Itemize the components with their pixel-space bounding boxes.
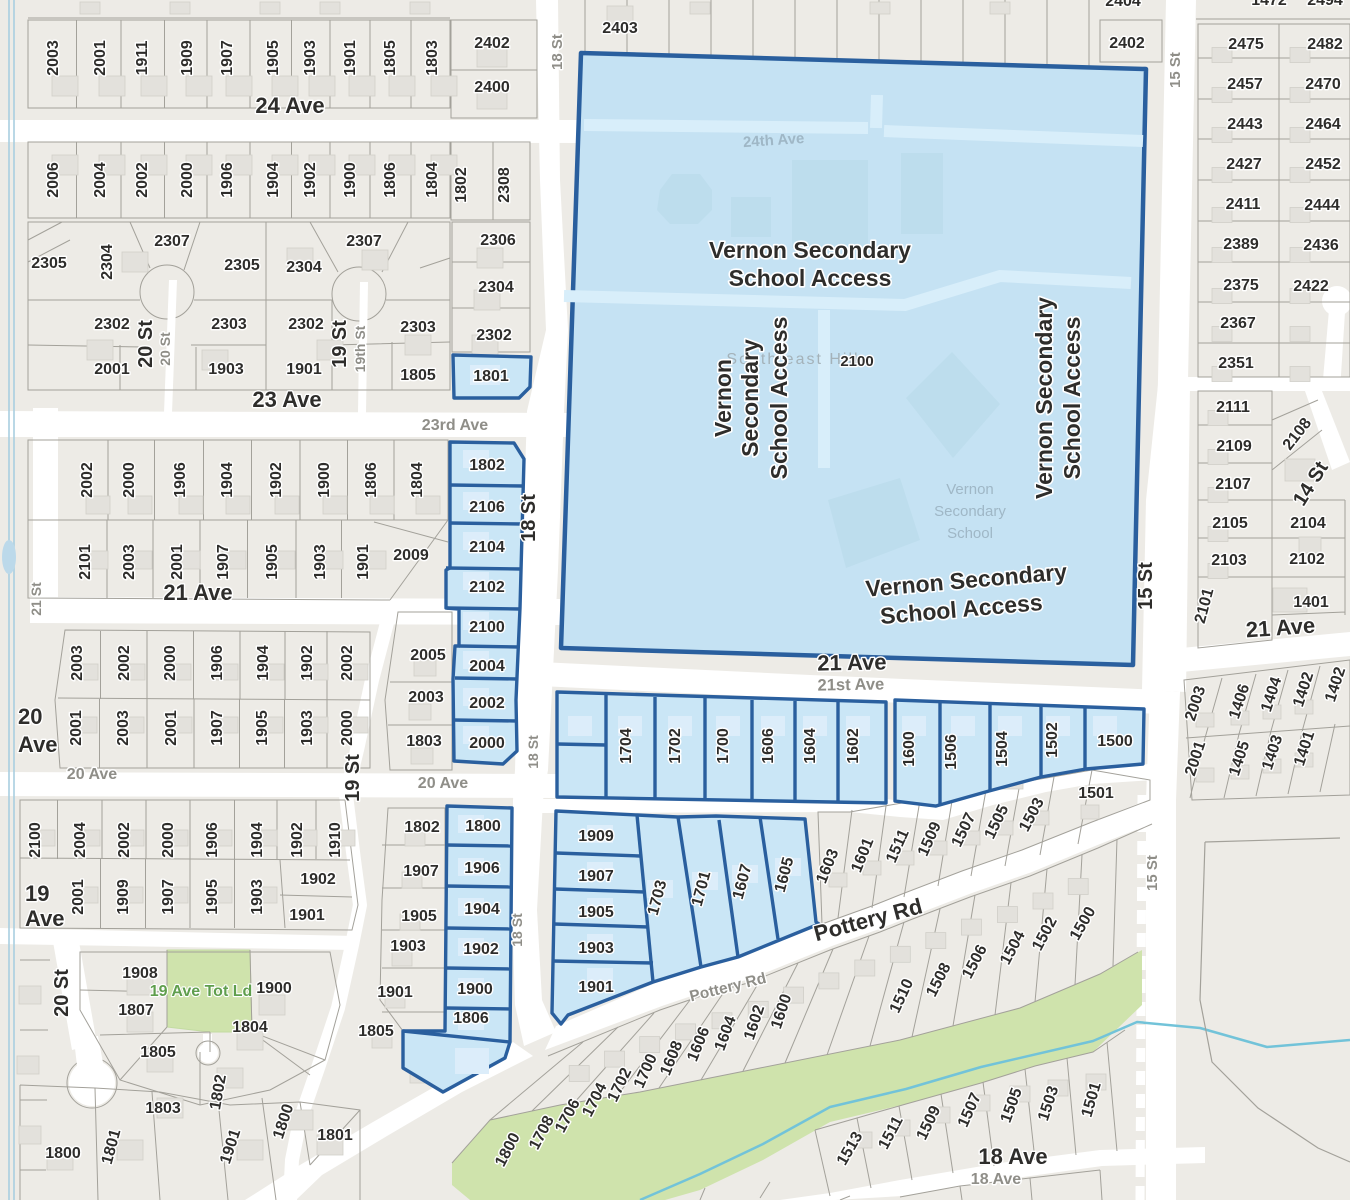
svg-text:2003: 2003: [69, 645, 86, 681]
svg-text:2306: 2306: [480, 232, 516, 249]
svg-text:19th St: 19th St: [352, 325, 368, 372]
svg-text:2004: 2004: [469, 658, 505, 675]
svg-text:1906: 1906: [204, 822, 221, 858]
svg-text:2302: 2302: [288, 316, 324, 333]
svg-text:2002: 2002: [116, 645, 133, 681]
svg-text:1900: 1900: [256, 980, 292, 997]
svg-text:2000: 2000: [162, 645, 179, 681]
svg-text:2006: 2006: [45, 162, 62, 198]
svg-text:1504: 1504: [994, 731, 1011, 767]
svg-text:1904: 1904: [249, 822, 266, 858]
svg-text:1805: 1805: [400, 367, 436, 384]
svg-text:1903: 1903: [299, 710, 316, 746]
svg-text:2002: 2002: [339, 645, 356, 681]
svg-text:1804: 1804: [424, 162, 441, 198]
svg-text:2103: 2103: [1211, 552, 1247, 569]
svg-text:1907: 1907: [160, 879, 177, 915]
svg-text:2000: 2000: [179, 162, 196, 198]
svg-text:20 Ave: 20 Ave: [67, 766, 118, 783]
svg-text:1904: 1904: [464, 901, 500, 918]
svg-text:1800: 1800: [465, 818, 501, 835]
svg-text:1909: 1909: [578, 828, 614, 845]
svg-text:2402: 2402: [474, 35, 510, 52]
svg-text:1902: 1902: [268, 462, 285, 498]
svg-text:2464: 2464: [1305, 116, 1341, 133]
svg-text:2005: 2005: [410, 647, 446, 664]
svg-text:2403: 2403: [602, 20, 638, 37]
svg-text:2004: 2004: [72, 822, 89, 858]
svg-text:2422: 2422: [1293, 278, 1329, 295]
svg-text:1801: 1801: [317, 1127, 353, 1144]
svg-text:2106: 2106: [469, 499, 505, 516]
svg-text:1501: 1501: [1078, 785, 1114, 802]
svg-text:1902: 1902: [300, 871, 336, 888]
svg-text:2302: 2302: [94, 316, 130, 333]
svg-text:1800: 1800: [45, 1145, 81, 1162]
svg-text:1806: 1806: [363, 462, 380, 498]
svg-text:1902: 1902: [289, 822, 306, 858]
svg-text:2003: 2003: [45, 40, 62, 76]
svg-text:20: 20: [18, 704, 42, 729]
svg-text:19 Ave Tot Ld: 19 Ave Tot Ld: [150, 983, 253, 1000]
svg-text:1901: 1901: [578, 979, 614, 996]
svg-text:2109: 2109: [1216, 438, 1252, 455]
svg-text:2111: 2111: [1216, 399, 1250, 416]
svg-text:19 St: 19 St: [329, 320, 351, 368]
svg-text:Ave: Ave: [25, 906, 65, 931]
svg-text:2494: 2494: [1307, 0, 1343, 9]
svg-text:2404: 2404: [1105, 0, 1141, 10]
svg-text:2482: 2482: [1307, 36, 1343, 53]
svg-text:2000: 2000: [469, 735, 505, 752]
svg-text:1904: 1904: [219, 462, 236, 498]
svg-text:1804: 1804: [232, 1019, 268, 1036]
svg-text:Ave: Ave: [18, 732, 58, 757]
svg-text:1472: 1472: [1251, 0, 1287, 9]
svg-text:2436: 2436: [1303, 237, 1339, 254]
svg-text:2100: 2100: [469, 619, 505, 636]
svg-text:1702: 1702: [667, 728, 684, 764]
svg-text:1802: 1802: [404, 819, 440, 836]
svg-text:1906: 1906: [172, 462, 189, 498]
svg-text:1700: 1700: [715, 728, 732, 764]
svg-text:1903: 1903: [302, 40, 319, 76]
svg-text:School Access: School Access: [766, 317, 792, 480]
svg-text:1907: 1907: [219, 40, 236, 76]
svg-text:1806: 1806: [382, 162, 399, 198]
svg-text:2307: 2307: [154, 233, 190, 250]
svg-text:1806: 1806: [453, 1010, 489, 1027]
svg-text:1904: 1904: [265, 162, 282, 198]
svg-text:21 Ave: 21 Ave: [163, 580, 232, 605]
svg-text:2001: 2001: [94, 361, 130, 378]
svg-text:1902: 1902: [463, 941, 499, 958]
svg-text:2107: 2107: [1215, 476, 1251, 493]
svg-text:2004: 2004: [92, 162, 109, 198]
svg-text:1600: 1600: [901, 731, 918, 767]
svg-text:School: School: [947, 525, 993, 542]
svg-text:2001: 2001: [169, 544, 186, 580]
svg-text:18 St: 18 St: [509, 913, 525, 947]
svg-text:Secondary: Secondary: [737, 339, 763, 457]
svg-text:1908: 1908: [122, 965, 158, 982]
svg-text:2303: 2303: [211, 316, 247, 333]
svg-text:20 Ave: 20 Ave: [418, 775, 469, 792]
svg-text:Vernon: Vernon: [710, 359, 736, 437]
svg-text:2104: 2104: [1290, 515, 1326, 532]
svg-text:1905: 1905: [254, 710, 271, 746]
svg-text:2427: 2427: [1226, 156, 1262, 173]
svg-text:1902: 1902: [302, 162, 319, 198]
svg-text:2304: 2304: [99, 244, 116, 280]
svg-text:1801: 1801: [473, 368, 509, 385]
svg-text:20 St: 20 St: [135, 320, 157, 368]
svg-text:18 Ave: 18 Ave: [978, 1144, 1047, 1169]
svg-text:1805: 1805: [140, 1044, 176, 1061]
svg-text:15 St: 15 St: [1135, 562, 1157, 610]
svg-text:1900: 1900: [316, 462, 333, 498]
svg-text:21 Ave: 21 Ave: [1245, 613, 1316, 643]
svg-text:21 St: 21 St: [28, 582, 44, 616]
svg-text:1901: 1901: [355, 544, 372, 580]
svg-text:2475: 2475: [1228, 36, 1264, 53]
svg-text:1900: 1900: [342, 162, 359, 198]
svg-text:1905: 1905: [401, 908, 437, 925]
svg-text:Secondary: Secondary: [934, 503, 1006, 520]
svg-text:2102: 2102: [469, 579, 505, 596]
svg-text:21st Ave: 21st Ave: [817, 675, 884, 694]
svg-text:2351: 2351: [1218, 355, 1254, 372]
svg-text:2411: 2411: [1226, 196, 1261, 213]
svg-text:2302: 2302: [476, 327, 512, 344]
svg-text:2444: 2444: [1304, 197, 1340, 214]
svg-text:1606: 1606: [760, 728, 777, 764]
svg-text:1802: 1802: [453, 167, 470, 203]
svg-text:19: 19: [25, 881, 49, 906]
svg-text:1907: 1907: [209, 710, 226, 746]
svg-text:2400: 2400: [474, 79, 510, 96]
svg-text:2402: 2402: [1109, 35, 1145, 52]
svg-text:2003: 2003: [121, 544, 138, 580]
svg-text:2470: 2470: [1305, 76, 1341, 93]
svg-text:2002: 2002: [79, 462, 96, 498]
svg-text:21 Ave: 21 Ave: [817, 649, 887, 675]
svg-text:2305: 2305: [31, 255, 67, 272]
svg-text:2000: 2000: [160, 822, 177, 858]
svg-text:2452: 2452: [1305, 156, 1341, 173]
svg-text:2001: 2001: [163, 710, 180, 746]
svg-text:1401: 1401: [1293, 594, 1329, 611]
svg-text:1900: 1900: [457, 981, 493, 998]
svg-text:2002: 2002: [469, 695, 505, 712]
svg-text:2100: 2100: [27, 822, 44, 858]
svg-text:18 St: 18 St: [549, 34, 566, 70]
svg-text:2000: 2000: [339, 710, 356, 746]
svg-text:1802: 1802: [469, 457, 505, 474]
svg-text:2457: 2457: [1227, 76, 1263, 93]
svg-text:1704: 1704: [618, 728, 635, 764]
svg-text:2303: 2303: [400, 319, 436, 336]
svg-text:2101: 2101: [77, 544, 94, 580]
svg-text:1903: 1903: [208, 361, 244, 378]
svg-text:2001: 2001: [68, 710, 85, 746]
svg-text:Vernon Secondary: Vernon Secondary: [709, 237, 911, 263]
svg-text:1904: 1904: [255, 645, 272, 681]
svg-text:2304: 2304: [478, 279, 514, 296]
svg-text:2009: 2009: [393, 547, 429, 564]
svg-text:1901: 1901: [377, 984, 413, 1001]
svg-text:1602: 1602: [845, 728, 862, 764]
svg-text:2375: 2375: [1223, 277, 1259, 294]
svg-text:1803: 1803: [145, 1100, 181, 1117]
svg-text:2367: 2367: [1220, 315, 1256, 332]
svg-text:15 St: 15 St: [1167, 52, 1184, 88]
svg-text:1903: 1903: [578, 940, 614, 957]
svg-text:Vernon Secondary: Vernon Secondary: [1031, 297, 1057, 499]
svg-text:1905: 1905: [264, 544, 281, 580]
svg-text:1907: 1907: [403, 863, 439, 880]
svg-text:School Access: School Access: [729, 265, 892, 291]
svg-text:1905: 1905: [204, 879, 221, 915]
svg-text:20 St: 20 St: [157, 332, 173, 366]
svg-text:1502: 1502: [1044, 722, 1061, 758]
svg-text:2104: 2104: [469, 539, 505, 556]
svg-text:15 St: 15 St: [1144, 855, 1161, 891]
svg-text:1805: 1805: [358, 1023, 394, 1040]
svg-text:1506: 1506: [943, 734, 960, 770]
svg-text:24 Ave: 24 Ave: [255, 93, 324, 118]
svg-text:2002: 2002: [116, 822, 133, 858]
svg-text:2003: 2003: [115, 710, 132, 746]
svg-text:1604: 1604: [802, 728, 819, 764]
svg-text:1803: 1803: [424, 40, 441, 76]
svg-text:1807: 1807: [118, 1002, 154, 1019]
svg-text:1903: 1903: [390, 938, 426, 955]
svg-text:2001: 2001: [70, 879, 87, 915]
svg-text:2389: 2389: [1223, 236, 1259, 253]
svg-text:1903: 1903: [249, 879, 266, 915]
svg-text:18 St: 18 St: [518, 494, 540, 542]
svg-text:1911: 1911: [134, 41, 151, 76]
svg-text:18 Ave: 18 Ave: [971, 1171, 1022, 1188]
svg-text:1901: 1901: [342, 40, 359, 76]
svg-text:1906: 1906: [209, 645, 226, 681]
svg-text:2305: 2305: [224, 257, 260, 274]
svg-text:1906: 1906: [219, 162, 236, 198]
svg-text:2307: 2307: [346, 233, 382, 250]
svg-text:School Access: School Access: [1059, 317, 1085, 480]
svg-text:1907: 1907: [578, 868, 614, 885]
svg-text:2002: 2002: [134, 162, 151, 198]
svg-text:2100: 2100: [840, 353, 873, 370]
svg-text:23rd Ave: 23rd Ave: [422, 417, 489, 434]
svg-text:1901: 1901: [286, 361, 322, 378]
svg-text:1909: 1909: [115, 879, 132, 915]
svg-text:2304: 2304: [286, 259, 322, 276]
svg-text:20 St: 20 St: [51, 969, 73, 1017]
svg-text:1803: 1803: [406, 733, 442, 750]
svg-text:1909: 1909: [179, 40, 196, 76]
svg-text:1906: 1906: [464, 860, 500, 877]
svg-text:1804: 1804: [409, 462, 426, 498]
svg-text:19 St: 19 St: [342, 754, 364, 802]
svg-text:1905: 1905: [578, 904, 614, 921]
svg-text:2443: 2443: [1227, 116, 1263, 133]
svg-text:1500: 1500: [1097, 733, 1133, 750]
svg-text:1901: 1901: [289, 907, 325, 924]
svg-text:2308: 2308: [496, 167, 513, 203]
svg-text:23 Ave: 23 Ave: [252, 387, 321, 412]
svg-text:1907: 1907: [215, 544, 232, 580]
svg-text:1905: 1905: [265, 40, 282, 76]
svg-text:2000: 2000: [121, 462, 138, 498]
svg-text:Vernon: Vernon: [946, 481, 994, 498]
svg-text:2105: 2105: [1212, 515, 1248, 532]
svg-text:2003: 2003: [408, 689, 444, 706]
svg-text:1902: 1902: [299, 645, 316, 681]
svg-text:2001: 2001: [92, 40, 109, 76]
svg-text:18 St: 18 St: [525, 735, 541, 769]
svg-text:2102: 2102: [1289, 551, 1325, 568]
svg-text:1910: 1910: [327, 822, 344, 858]
svg-text:1805: 1805: [382, 40, 399, 76]
svg-text:1903: 1903: [312, 544, 329, 580]
